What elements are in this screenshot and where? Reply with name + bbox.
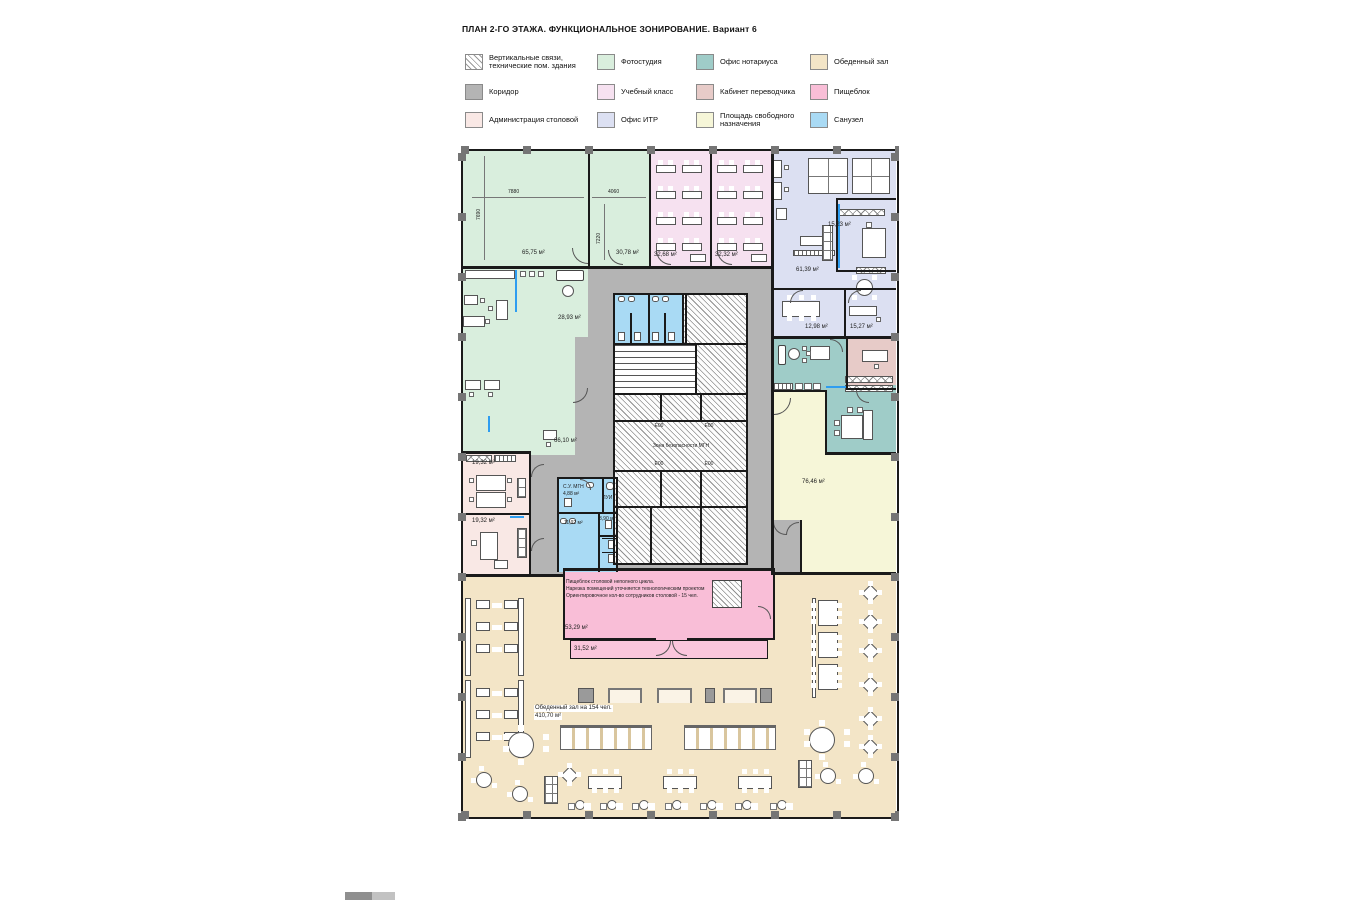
chair-symbol bbox=[469, 478, 474, 483]
banq-symbol bbox=[560, 725, 652, 750]
cdesk-symbol bbox=[682, 160, 702, 173]
blue-symbol bbox=[838, 204, 840, 268]
room-area-label: 3,90 м² bbox=[599, 516, 615, 522]
legend-item-free-area: Площадь свободного назначения bbox=[696, 110, 794, 130]
wall bbox=[613, 293, 615, 565]
bt-symbol bbox=[476, 600, 490, 609]
legend-label: Пищеблок bbox=[834, 88, 870, 97]
pillar-symbol bbox=[760, 688, 772, 703]
desk-symbol bbox=[463, 316, 485, 327]
wall bbox=[836, 198, 838, 271]
legend-label: Учебный класс bbox=[621, 88, 673, 97]
round2-symbol bbox=[575, 800, 585, 810]
booth-symbol bbox=[657, 688, 692, 703]
btl-symbol bbox=[504, 622, 518, 631]
wall bbox=[648, 295, 650, 345]
bench-symbol bbox=[518, 598, 524, 676]
cdesk-symbol bbox=[743, 238, 763, 251]
notary-swatch-icon bbox=[696, 54, 714, 70]
elevator-label: Е00 bbox=[648, 461, 670, 467]
wall bbox=[613, 470, 748, 472]
room-area-label: 30,78 м² bbox=[616, 250, 639, 257]
wall bbox=[771, 266, 774, 575]
admin-swatch-icon bbox=[465, 112, 483, 128]
round6-symbol bbox=[809, 727, 835, 753]
wall bbox=[800, 520, 802, 572]
dlinev-symbol bbox=[484, 156, 485, 260]
chair-symbol bbox=[847, 407, 853, 413]
sink-symbol bbox=[652, 296, 659, 302]
round2-symbol bbox=[672, 800, 682, 810]
room-area-label: 31,52 м² bbox=[574, 646, 597, 653]
btl-symbol bbox=[504, 644, 518, 653]
food-note-line: Ориентировочное кол-во сотрудников столо… bbox=[566, 593, 698, 599]
round2-symbol bbox=[742, 800, 752, 810]
wall bbox=[695, 345, 697, 395]
wall bbox=[773, 570, 775, 640]
wall bbox=[836, 270, 896, 272]
classroom-swatch-icon bbox=[597, 84, 615, 100]
cdesk-symbol bbox=[717, 186, 737, 199]
wall bbox=[616, 477, 618, 572]
wall bbox=[463, 574, 564, 577]
dimension-label: 7690 bbox=[476, 209, 482, 220]
sink-symbol bbox=[662, 296, 669, 302]
legend-item-translator: Кабинет переводчика bbox=[696, 82, 795, 102]
room-name-label: С.У. МГН bbox=[563, 484, 584, 490]
wall bbox=[613, 343, 748, 345]
bt-symbol bbox=[476, 622, 490, 631]
fix-symbol bbox=[652, 332, 659, 341]
bt-symbol bbox=[476, 710, 490, 719]
room-area-label: 15,27 м² bbox=[850, 324, 873, 331]
wall bbox=[557, 477, 559, 572]
cdesk-symbol bbox=[717, 212, 737, 225]
legend-item-wc: Санузел bbox=[810, 110, 863, 130]
wall bbox=[613, 563, 748, 565]
bt-symbol bbox=[476, 732, 490, 741]
blue-symbol bbox=[510, 516, 524, 518]
room-area-label: 19,32 м² bbox=[472, 518, 495, 525]
chair-symbol bbox=[488, 306, 493, 311]
hatchbox-symbol bbox=[712, 580, 742, 608]
bt-symbol bbox=[476, 644, 490, 653]
xtable-symbol bbox=[558, 764, 580, 786]
desk-symbol bbox=[690, 254, 706, 262]
food-note-line: Нарезка помещений уточняется технологиче… bbox=[566, 586, 704, 592]
cdesk-symbol bbox=[656, 212, 676, 225]
desk-symbol bbox=[465, 270, 515, 279]
pillar-symbol bbox=[578, 688, 594, 703]
desk-symbol bbox=[751, 254, 767, 262]
elevator-label: Е00 bbox=[648, 423, 670, 429]
wall bbox=[588, 151, 590, 266]
tablev8-symbol bbox=[818, 600, 838, 626]
round-symbol bbox=[562, 285, 574, 297]
sofav-symbol bbox=[778, 345, 786, 365]
pod-symbol bbox=[808, 158, 848, 194]
stairs bbox=[615, 345, 695, 394]
round2-symbol bbox=[777, 800, 787, 810]
sink-symbol bbox=[628, 296, 635, 302]
wall bbox=[685, 295, 687, 343]
zone-free-area-right bbox=[826, 453, 896, 572]
corridor-swatch-icon bbox=[465, 84, 483, 100]
deskv-symbol bbox=[863, 410, 873, 440]
table6-symbol bbox=[663, 776, 697, 789]
wall bbox=[700, 395, 702, 420]
wall bbox=[570, 640, 571, 658]
blue-symbol bbox=[826, 386, 848, 388]
fix-symbol bbox=[668, 332, 675, 341]
wall bbox=[613, 506, 748, 508]
chair-symbol bbox=[834, 430, 840, 436]
chair-symbol bbox=[857, 407, 863, 413]
bench-symbol bbox=[812, 598, 816, 698]
desk-symbol bbox=[841, 415, 863, 439]
chair-symbol bbox=[866, 222, 872, 228]
cdesk-symbol bbox=[743, 160, 763, 173]
round3-symbol bbox=[476, 772, 492, 788]
desk-symbol bbox=[494, 560, 508, 569]
elevator-label: Е00 bbox=[698, 423, 720, 429]
wall bbox=[563, 568, 775, 571]
lockers-symbol bbox=[822, 225, 833, 261]
wall bbox=[767, 640, 768, 658]
round2-symbol bbox=[607, 800, 617, 810]
shelf-symbol bbox=[773, 383, 793, 390]
desk-symbol bbox=[849, 306, 877, 316]
booth-symbol bbox=[608, 688, 642, 703]
room-name-label: ПУИ bbox=[602, 495, 612, 501]
room-area-label: 19,32 м² bbox=[472, 460, 495, 467]
chair-symbol bbox=[529, 271, 535, 277]
wall bbox=[772, 336, 896, 339]
legend-item-dining: Обеденный зал bbox=[810, 52, 889, 72]
wall bbox=[613, 393, 748, 395]
tablev8-symbol bbox=[818, 632, 838, 658]
table6-symbol bbox=[738, 776, 772, 789]
xtable-symbol bbox=[859, 674, 881, 696]
wall bbox=[825, 392, 827, 454]
wc-swatch-icon bbox=[810, 112, 828, 128]
chair-symbol bbox=[469, 497, 474, 502]
bt-symbol bbox=[476, 688, 490, 697]
sink-symbol bbox=[618, 296, 625, 302]
plan-title: ПЛАН 2-ГО ЭТАЖА. ФУНКЦИОНАЛЬНОЕ ЗОНИРОВА… bbox=[462, 24, 757, 34]
wall bbox=[710, 151, 712, 266]
desk-symbol bbox=[465, 380, 481, 390]
dining-area-label: 410,70 м² bbox=[534, 713, 562, 720]
legend-item-photostudio: Фотостудия bbox=[597, 52, 662, 72]
chair-symbol bbox=[507, 478, 512, 483]
itr-swatch-icon bbox=[597, 112, 615, 128]
wall bbox=[650, 506, 652, 563]
cdesk-symbol bbox=[682, 212, 702, 225]
legend-label: Администрация столовой bbox=[489, 116, 578, 125]
floor-plan: 7880 4060 7690 7220 65,75 м² 30,78 м² 32… bbox=[460, 148, 900, 822]
desk-symbol bbox=[496, 300, 508, 320]
round2-symbol bbox=[639, 800, 649, 810]
pod-symbol bbox=[852, 158, 890, 194]
chair-symbol bbox=[876, 317, 881, 322]
wall bbox=[746, 293, 748, 565]
page: ПЛАН 2-ГО ЭТАЖА. ФУНКЦИОНАЛЬНОЕ ЗОНИРОВА… bbox=[0, 0, 1360, 900]
legend-label: Площадь свободного назначения bbox=[720, 112, 794, 129]
cdesk-symbol bbox=[743, 212, 763, 225]
round6-symbol bbox=[508, 732, 534, 758]
chair-symbol bbox=[469, 392, 474, 397]
wall bbox=[836, 198, 896, 200]
legend-label: Офис нотариуса bbox=[720, 58, 778, 67]
lockers-symbol bbox=[798, 760, 812, 788]
chair-symbol bbox=[471, 540, 477, 546]
swall-symbol bbox=[664, 313, 666, 343]
desk-symbol bbox=[810, 346, 830, 360]
dimension-label: 7880 bbox=[508, 189, 519, 195]
wall bbox=[557, 477, 618, 479]
wall bbox=[772, 390, 827, 392]
deskv-symbol bbox=[773, 182, 782, 200]
room-area-label: 4,88 м² bbox=[563, 491, 579, 497]
xtable-symbol bbox=[859, 708, 881, 730]
xtable-symbol bbox=[859, 582, 881, 604]
sq-symbol bbox=[813, 383, 821, 390]
column-row-left bbox=[458, 149, 466, 821]
lockers-symbol bbox=[517, 478, 526, 498]
sofa-symbol bbox=[556, 270, 584, 281]
cdesk-symbol bbox=[743, 186, 763, 199]
desk-symbol bbox=[484, 380, 500, 390]
wall bbox=[598, 514, 600, 572]
chair-symbol bbox=[784, 165, 789, 170]
dline-symbol bbox=[472, 197, 584, 198]
desk-symbol bbox=[862, 228, 886, 258]
chair-symbol bbox=[834, 420, 840, 426]
deskv-symbol bbox=[480, 532, 498, 560]
room-area-label: 11,92 м² bbox=[564, 520, 583, 526]
round3-symbol bbox=[512, 786, 528, 802]
dining-capacity-label: Обеденный зал на 154 чел. bbox=[534, 705, 613, 712]
legend-label: Вертикальные связи, технические пом. зда… bbox=[489, 54, 576, 71]
room-area-label: 15,23 м² bbox=[828, 222, 851, 229]
legend-item-notary: Офис нотариуса bbox=[696, 52, 778, 72]
chair-symbol bbox=[784, 187, 789, 192]
room-area-label: 12,98 м² bbox=[805, 324, 828, 331]
chair-symbol bbox=[488, 392, 493, 397]
legend-item-food-unit: Пищеблок bbox=[810, 82, 870, 102]
legend-label: Офис ИТР bbox=[621, 116, 658, 125]
shelf-symbol bbox=[494, 455, 516, 462]
round3-symbol bbox=[820, 768, 836, 784]
translator-swatch-icon bbox=[696, 84, 714, 100]
chair-symbol bbox=[806, 351, 811, 356]
xtable-symbol bbox=[859, 640, 881, 662]
btl-symbol bbox=[504, 600, 518, 609]
wall bbox=[660, 395, 662, 420]
safety-zone-label: Зона безопасности МГН bbox=[615, 443, 747, 449]
booth-symbol bbox=[723, 688, 757, 703]
chair-symbol bbox=[485, 319, 490, 324]
tablev8-symbol bbox=[818, 664, 838, 690]
food-swatch-icon bbox=[810, 84, 828, 100]
desk-symbol bbox=[776, 208, 787, 220]
wall bbox=[613, 293, 748, 295]
artifact-bar bbox=[372, 892, 395, 900]
cdesk-symbol bbox=[717, 160, 737, 173]
wall bbox=[463, 513, 530, 515]
mtable-symbol bbox=[782, 301, 820, 317]
legend-item-classroom: Учебный класс bbox=[597, 82, 673, 102]
cdesk-symbol bbox=[656, 160, 676, 173]
lockers-symbol bbox=[517, 528, 527, 558]
desk-symbol bbox=[476, 475, 506, 491]
xtable-symbol bbox=[859, 611, 881, 633]
blue-symbol bbox=[488, 416, 490, 432]
deskv-symbol bbox=[773, 160, 782, 178]
artifact-bar bbox=[345, 892, 372, 900]
blue-symbol bbox=[515, 270, 517, 312]
dline-symbol bbox=[592, 197, 646, 198]
wall bbox=[570, 640, 768, 641]
wall bbox=[463, 266, 773, 269]
food-note-line: Пищеблок столовой неполного цикла. bbox=[566, 579, 654, 585]
wall bbox=[772, 572, 896, 575]
dimension-label: 4060 bbox=[608, 189, 619, 195]
table6-symbol bbox=[588, 776, 622, 789]
wall bbox=[825, 452, 896, 455]
legend-label: Коридор bbox=[489, 88, 519, 97]
wall bbox=[649, 151, 651, 266]
lockers-symbol bbox=[544, 776, 558, 804]
legend-label: Обеденный зал bbox=[834, 58, 889, 67]
sq-symbol bbox=[804, 383, 812, 390]
btl-symbol bbox=[504, 710, 518, 719]
room-area-label: 32,68 м² bbox=[654, 252, 677, 259]
legend-label: Фотостудия bbox=[621, 58, 662, 67]
legend-label: Кабинет переводчика bbox=[720, 88, 795, 97]
elevator-label: Е00 bbox=[698, 461, 720, 467]
banq-symbol bbox=[684, 725, 776, 750]
btl-symbol bbox=[504, 688, 518, 697]
fix-symbol bbox=[564, 498, 572, 507]
wall bbox=[772, 288, 896, 290]
free-area-swatch-icon bbox=[696, 112, 714, 128]
column-row-bottom bbox=[461, 811, 899, 819]
column-row-right bbox=[891, 149, 899, 821]
wall bbox=[570, 658, 768, 659]
pillar-symbol bbox=[705, 688, 715, 703]
wall bbox=[846, 388, 896, 390]
chair-symbol bbox=[507, 497, 512, 502]
xtable-symbol bbox=[859, 736, 881, 758]
wall bbox=[613, 420, 748, 422]
chair-symbol bbox=[546, 442, 551, 447]
dimension-label: 7220 bbox=[596, 233, 602, 244]
wardrobe-symbol bbox=[845, 376, 893, 383]
room-area-label: 61,39 м² bbox=[796, 267, 819, 274]
wall bbox=[771, 151, 774, 266]
photostudio-swatch-icon bbox=[597, 54, 615, 70]
room-area-label: 65,75 м² bbox=[522, 250, 545, 257]
legend-item-itr-office: Офис ИТР bbox=[597, 110, 658, 130]
legend-item-admin: Администрация столовой bbox=[465, 110, 578, 130]
desk-symbol bbox=[464, 295, 478, 305]
dining-swatch-icon bbox=[810, 54, 828, 70]
wall bbox=[846, 338, 848, 389]
chair-symbol bbox=[520, 271, 526, 277]
wall bbox=[463, 451, 530, 454]
wall bbox=[558, 512, 617, 514]
chair-symbol bbox=[874, 364, 879, 369]
desk-symbol bbox=[476, 492, 506, 508]
legend-item-corridor: Коридор bbox=[465, 82, 519, 102]
wall bbox=[682, 295, 684, 345]
room-area-label: 66,10 м² bbox=[554, 438, 577, 445]
swall-symbol bbox=[630, 313, 632, 343]
wardrobe-symbol bbox=[837, 209, 885, 216]
wall bbox=[660, 470, 662, 506]
desk-symbol bbox=[862, 350, 888, 362]
column-row-top bbox=[461, 146, 899, 154]
round2-symbol bbox=[707, 800, 717, 810]
round3-symbol bbox=[858, 768, 874, 784]
room-area-label: 76,46 м² bbox=[802, 479, 825, 486]
chair-symbol bbox=[480, 298, 485, 303]
wall bbox=[700, 506, 702, 563]
sq-symbol bbox=[795, 383, 803, 390]
fix-symbol bbox=[618, 332, 625, 341]
cdesk-symbol bbox=[682, 186, 702, 199]
fix-symbol bbox=[634, 332, 641, 341]
room-area-label: 32,32 м² bbox=[715, 252, 738, 259]
room-area-label: 28,93 м² bbox=[558, 315, 581, 322]
cdesk-symbol bbox=[682, 238, 702, 251]
legend-label: Санузел bbox=[834, 116, 863, 125]
hatch-swatch-icon bbox=[465, 54, 483, 70]
wall bbox=[844, 289, 846, 338]
chair-symbol bbox=[802, 358, 807, 363]
cdesk-symbol bbox=[656, 186, 676, 199]
room-area-label: 53,29 м² bbox=[565, 625, 588, 632]
chair-symbol bbox=[538, 271, 544, 277]
round-symbol bbox=[788, 348, 800, 360]
legend-item-vertical-links: Вертикальные связи, технические пом. зда… bbox=[465, 52, 576, 72]
dlinev-symbol bbox=[604, 204, 605, 260]
wall bbox=[700, 470, 702, 506]
